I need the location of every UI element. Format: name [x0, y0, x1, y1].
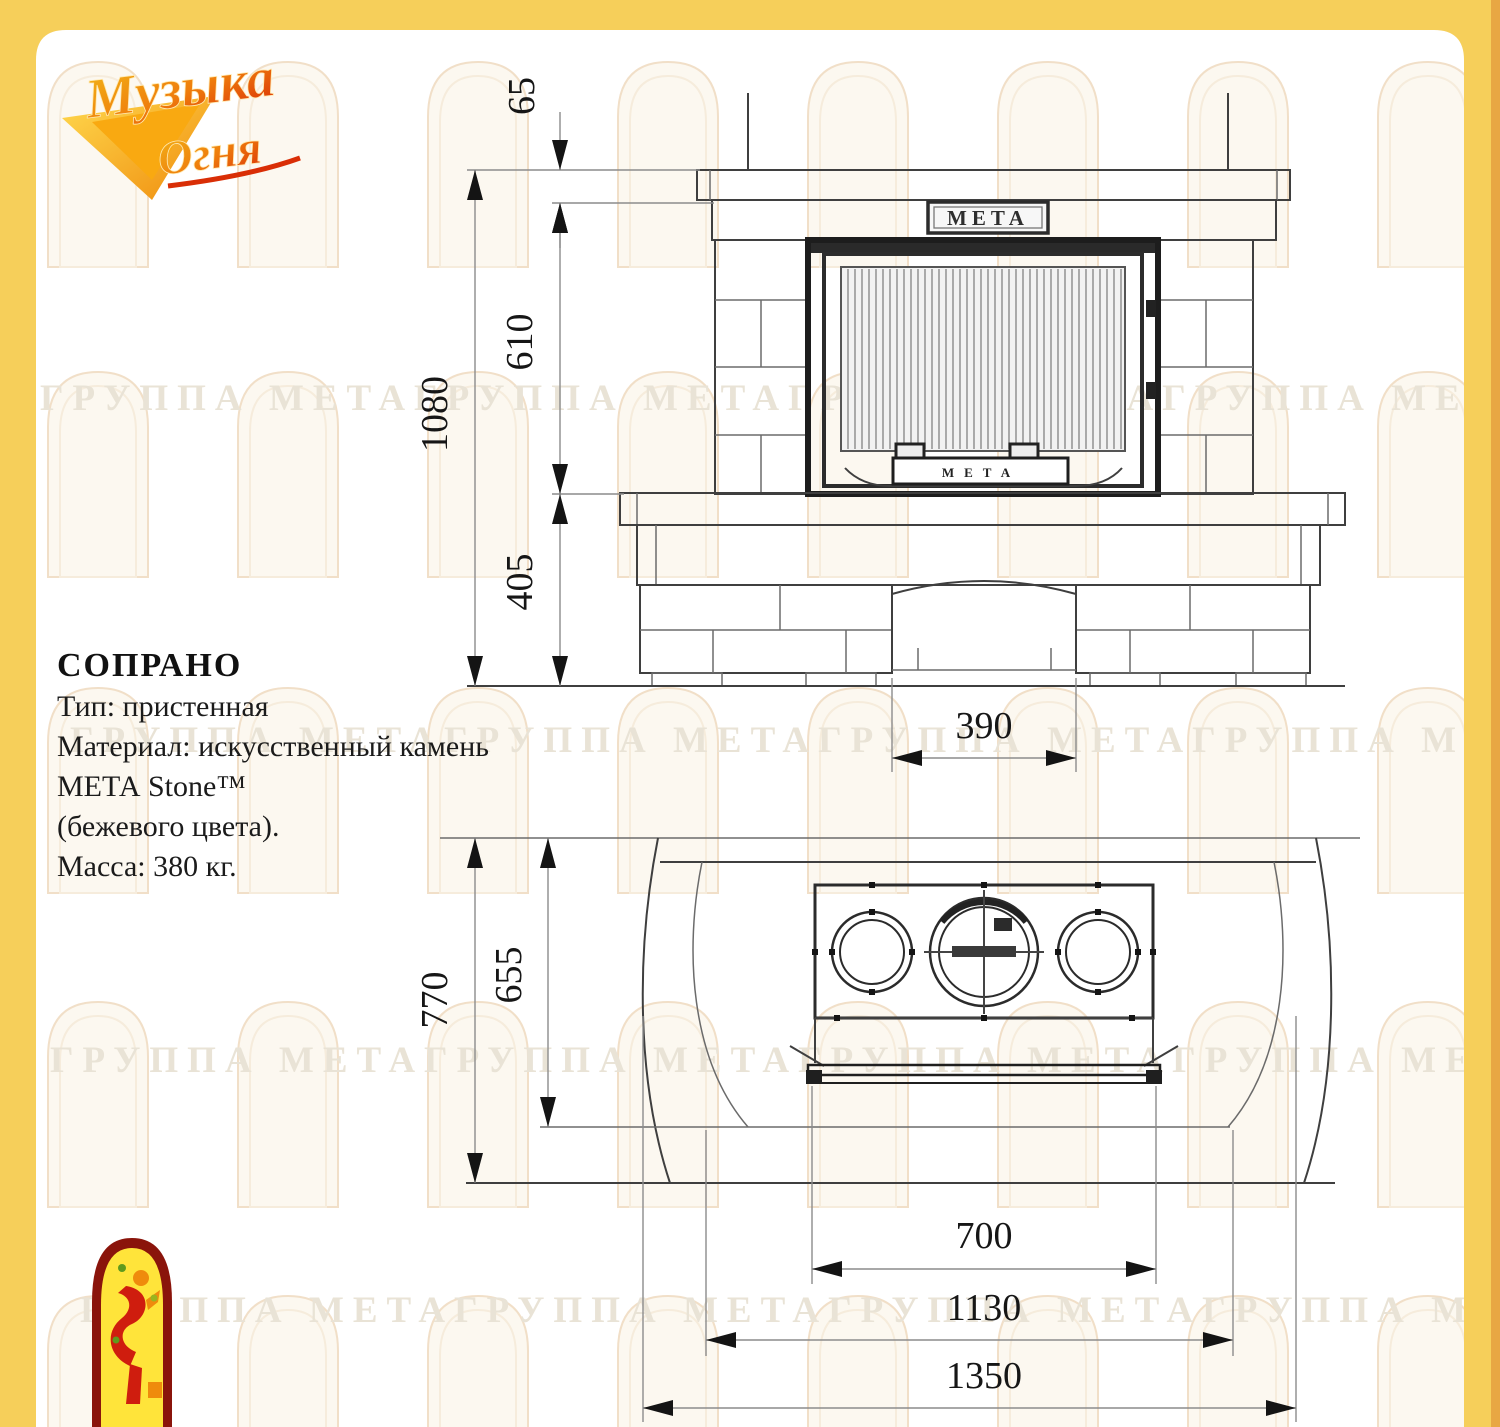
watermark-text: ГРУППА МЕТАГРУППА МЕТАГРУППА МЕТАГРУППА …: [80, 1290, 1500, 1331]
base-foot: [1236, 673, 1306, 686]
dim-label-655: 655: [488, 947, 530, 1004]
spec-sheet-page: ГРУППА МЕТАГРУППА МЕТАГРУППА МЕТАГРУППА …: [0, 0, 1500, 1427]
watermark-arch: [998, 1002, 1098, 1207]
spec-line-type: Тип: пристенная: [57, 690, 269, 723]
hinge-top: [1146, 300, 1156, 317]
dim-label-405: 405: [499, 554, 541, 611]
watermark-text: ГРУППА МЕТАГРУППА МЕТАГРУППА МЕТАГРУППА …: [40, 378, 1500, 419]
dim-label-610: 610: [499, 314, 541, 371]
base-foot: [1090, 673, 1160, 686]
spec-line-color: (бежевого цвета).: [57, 810, 279, 843]
dim-700: 700: [812, 1215, 1156, 1277]
spec-line-stone: МЕТА Stone™: [57, 770, 246, 803]
watermark-arch: [1378, 62, 1478, 267]
watermark-arch: [1378, 1002, 1478, 1207]
hinge-bottom: [1146, 382, 1156, 399]
flue-circle-right: [1055, 909, 1141, 995]
watermark-arch: [1188, 62, 1288, 267]
watermark-arch: [808, 1002, 908, 1207]
watermark-text: ГРУППА МЕТАГРУППА МЕТАГРУППА МЕТАГРУППА …: [50, 1040, 1500, 1081]
watermark-arch: [238, 1002, 338, 1207]
nameplate-text: МЕТА: [947, 206, 1029, 230]
dim-label-65: 65: [501, 77, 543, 115]
watermark-arch: [428, 1002, 528, 1207]
dim-label-390: 390: [956, 705, 1013, 747]
flue-circle-left: [829, 909, 915, 995]
stone-pillar-left: [715, 240, 808, 494]
base-foot: [652, 673, 722, 686]
watermark-arch: [1378, 688, 1478, 893]
watermark-arch: [998, 62, 1098, 267]
meta-nameplate: МЕТА: [928, 202, 1048, 233]
watermark-arch: [1188, 1002, 1288, 1207]
product-title: СОПРАНО: [57, 647, 242, 684]
spec-line-mass: Масса: 380 кг.: [57, 850, 237, 883]
watermark-arch: [808, 62, 908, 267]
plan-outer-arc-right: [1304, 838, 1331, 1183]
fire-dancer-emblem: [92, 1238, 172, 1427]
spec-line-material: Материал: искусственный камень: [57, 730, 489, 763]
vent-text: МЕТА: [942, 465, 1020, 480]
flue-circle-center: [924, 890, 1044, 1014]
dim-label-1350: 1350: [946, 1355, 1022, 1397]
vent-strip: МЕТА: [893, 458, 1068, 484]
wood-niche-arch: [892, 581, 1076, 673]
base-plinth: [640, 581, 1310, 686]
dim-label-1130: 1130: [947, 1287, 1022, 1329]
watermark-arch: [618, 62, 718, 267]
dim-label-1080: 1080: [414, 376, 456, 452]
dim-label-700: 700: [956, 1215, 1013, 1257]
base-foot: [806, 673, 876, 686]
dim-label-770: 770: [414, 972, 456, 1029]
watermark-arch: [48, 1002, 148, 1207]
